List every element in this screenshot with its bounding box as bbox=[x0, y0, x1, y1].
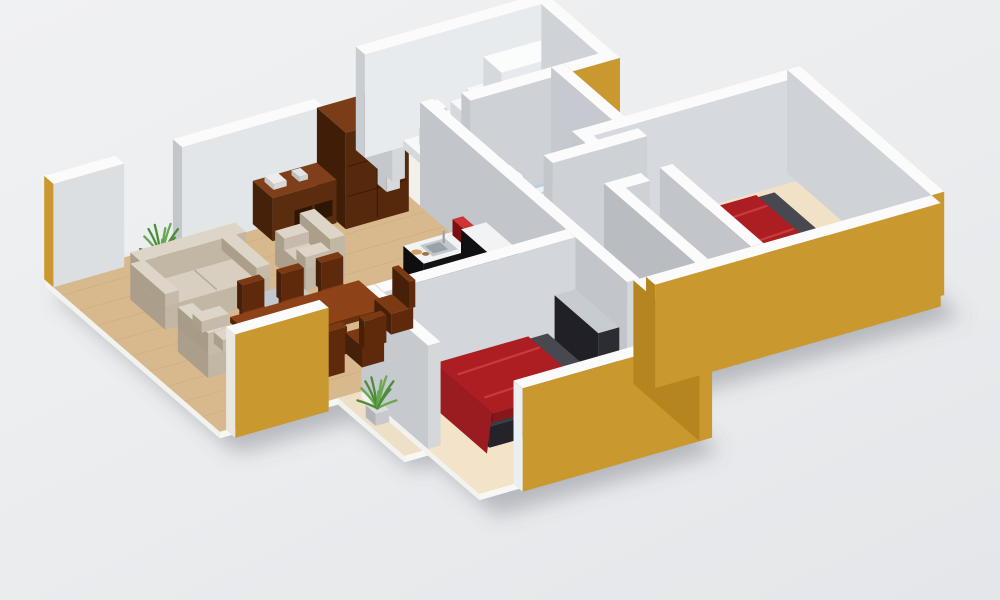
dining-chair-far-2-back bbox=[276, 263, 303, 301]
dining-chair-near-2-back bbox=[359, 311, 386, 349]
dining-chair-far-1-back bbox=[237, 274, 264, 312]
floorplan-3d-scene bbox=[0, 0, 1000, 600]
floorplan-render-stage bbox=[0, 0, 1000, 600]
wall-living-west-piece bbox=[44, 156, 124, 288]
dining-chair-far-3-back bbox=[316, 252, 343, 290]
render-root bbox=[44, 0, 961, 516]
